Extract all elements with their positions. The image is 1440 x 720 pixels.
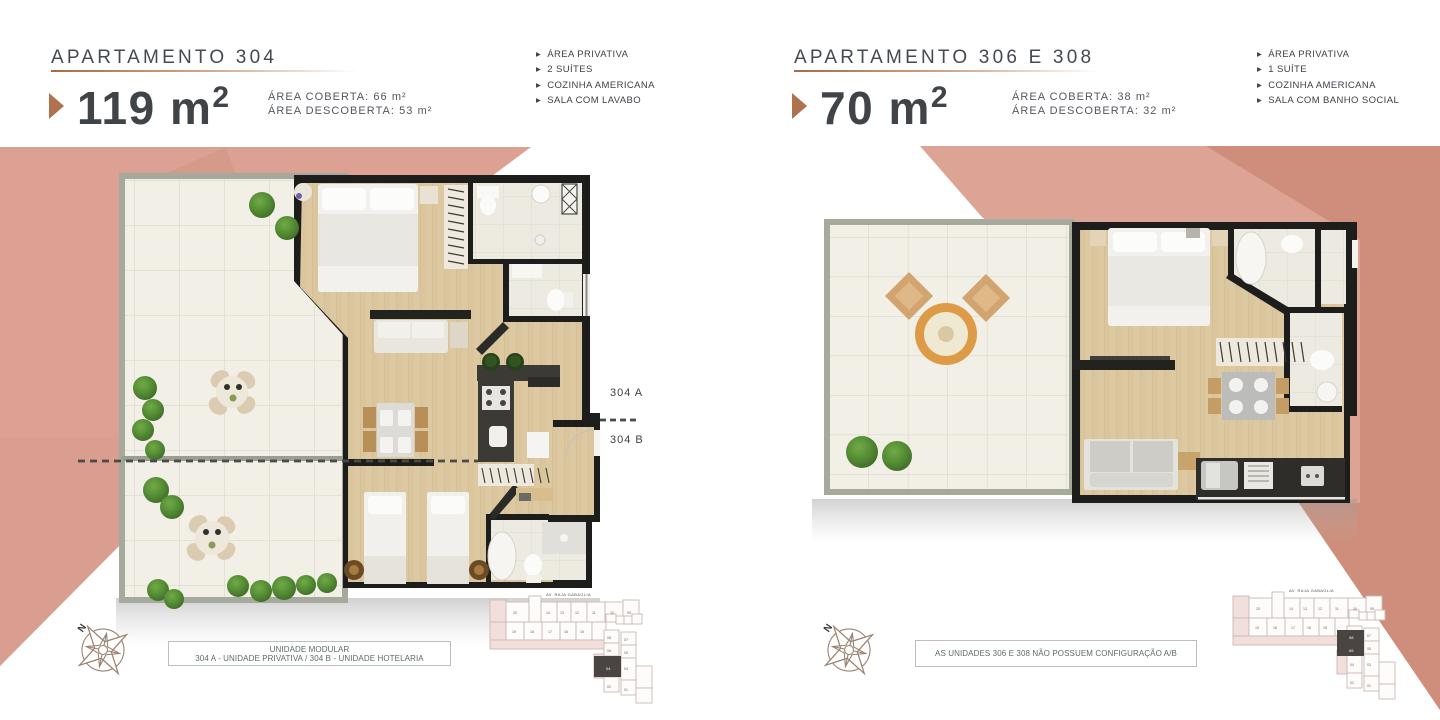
- svg-text:16: 16: [564, 630, 568, 634]
- svg-text:07: 07: [1367, 634, 1371, 638]
- svg-text:01: 01: [624, 688, 628, 692]
- svg-text:N: N: [76, 622, 89, 634]
- svg-text:17: 17: [1291, 626, 1295, 630]
- svg-text:14: 14: [546, 611, 550, 615]
- svg-text:10: 10: [1353, 607, 1357, 611]
- svg-text:11: 11: [592, 611, 596, 615]
- svg-text:AV. RAJA GABAGLIA: AV. RAJA GABAGLIA: [1289, 588, 1334, 593]
- svg-text:09: 09: [627, 611, 631, 615]
- svg-text:N: N: [822, 622, 835, 634]
- svg-text:08: 08: [1349, 635, 1354, 640]
- svg-text:06: 06: [607, 649, 611, 653]
- svg-text:02: 02: [1350, 681, 1354, 685]
- svg-text:19: 19: [512, 630, 516, 634]
- svg-text:17: 17: [548, 630, 552, 634]
- svg-text:15: 15: [1323, 626, 1327, 630]
- svg-text:12: 12: [1318, 607, 1322, 611]
- svg-text:18: 18: [1273, 626, 1277, 630]
- svg-text:09: 09: [1370, 607, 1374, 611]
- svg-text:AV. RAJA GABAGLIA: AV. RAJA GABAGLIA: [546, 592, 591, 597]
- svg-text:06: 06: [1349, 648, 1354, 653]
- svg-text:07: 07: [624, 638, 628, 642]
- svg-text:11: 11: [1335, 607, 1339, 611]
- svg-text:10: 10: [610, 611, 614, 615]
- svg-text:16: 16: [1307, 626, 1311, 630]
- svg-text:13: 13: [560, 611, 564, 615]
- svg-text:04: 04: [1350, 663, 1354, 667]
- svg-text:14: 14: [1289, 607, 1293, 611]
- svg-text:12: 12: [575, 611, 579, 615]
- svg-text:15: 15: [580, 630, 584, 634]
- svg-text:04: 04: [606, 666, 611, 671]
- svg-text:03: 03: [624, 667, 628, 671]
- svg-text:01: 01: [1367, 684, 1371, 688]
- svg-text:05: 05: [1367, 647, 1371, 651]
- svg-text:18: 18: [530, 630, 534, 634]
- svg-text:20: 20: [1256, 607, 1260, 611]
- svg-text:02: 02: [607, 685, 611, 689]
- svg-text:05: 05: [624, 651, 628, 655]
- svg-text:08: 08: [607, 636, 611, 640]
- svg-text:20: 20: [513, 611, 517, 615]
- svg-text:03: 03: [1367, 663, 1371, 667]
- svg-text:13: 13: [1303, 607, 1307, 611]
- svg-text:19: 19: [1255, 626, 1259, 630]
